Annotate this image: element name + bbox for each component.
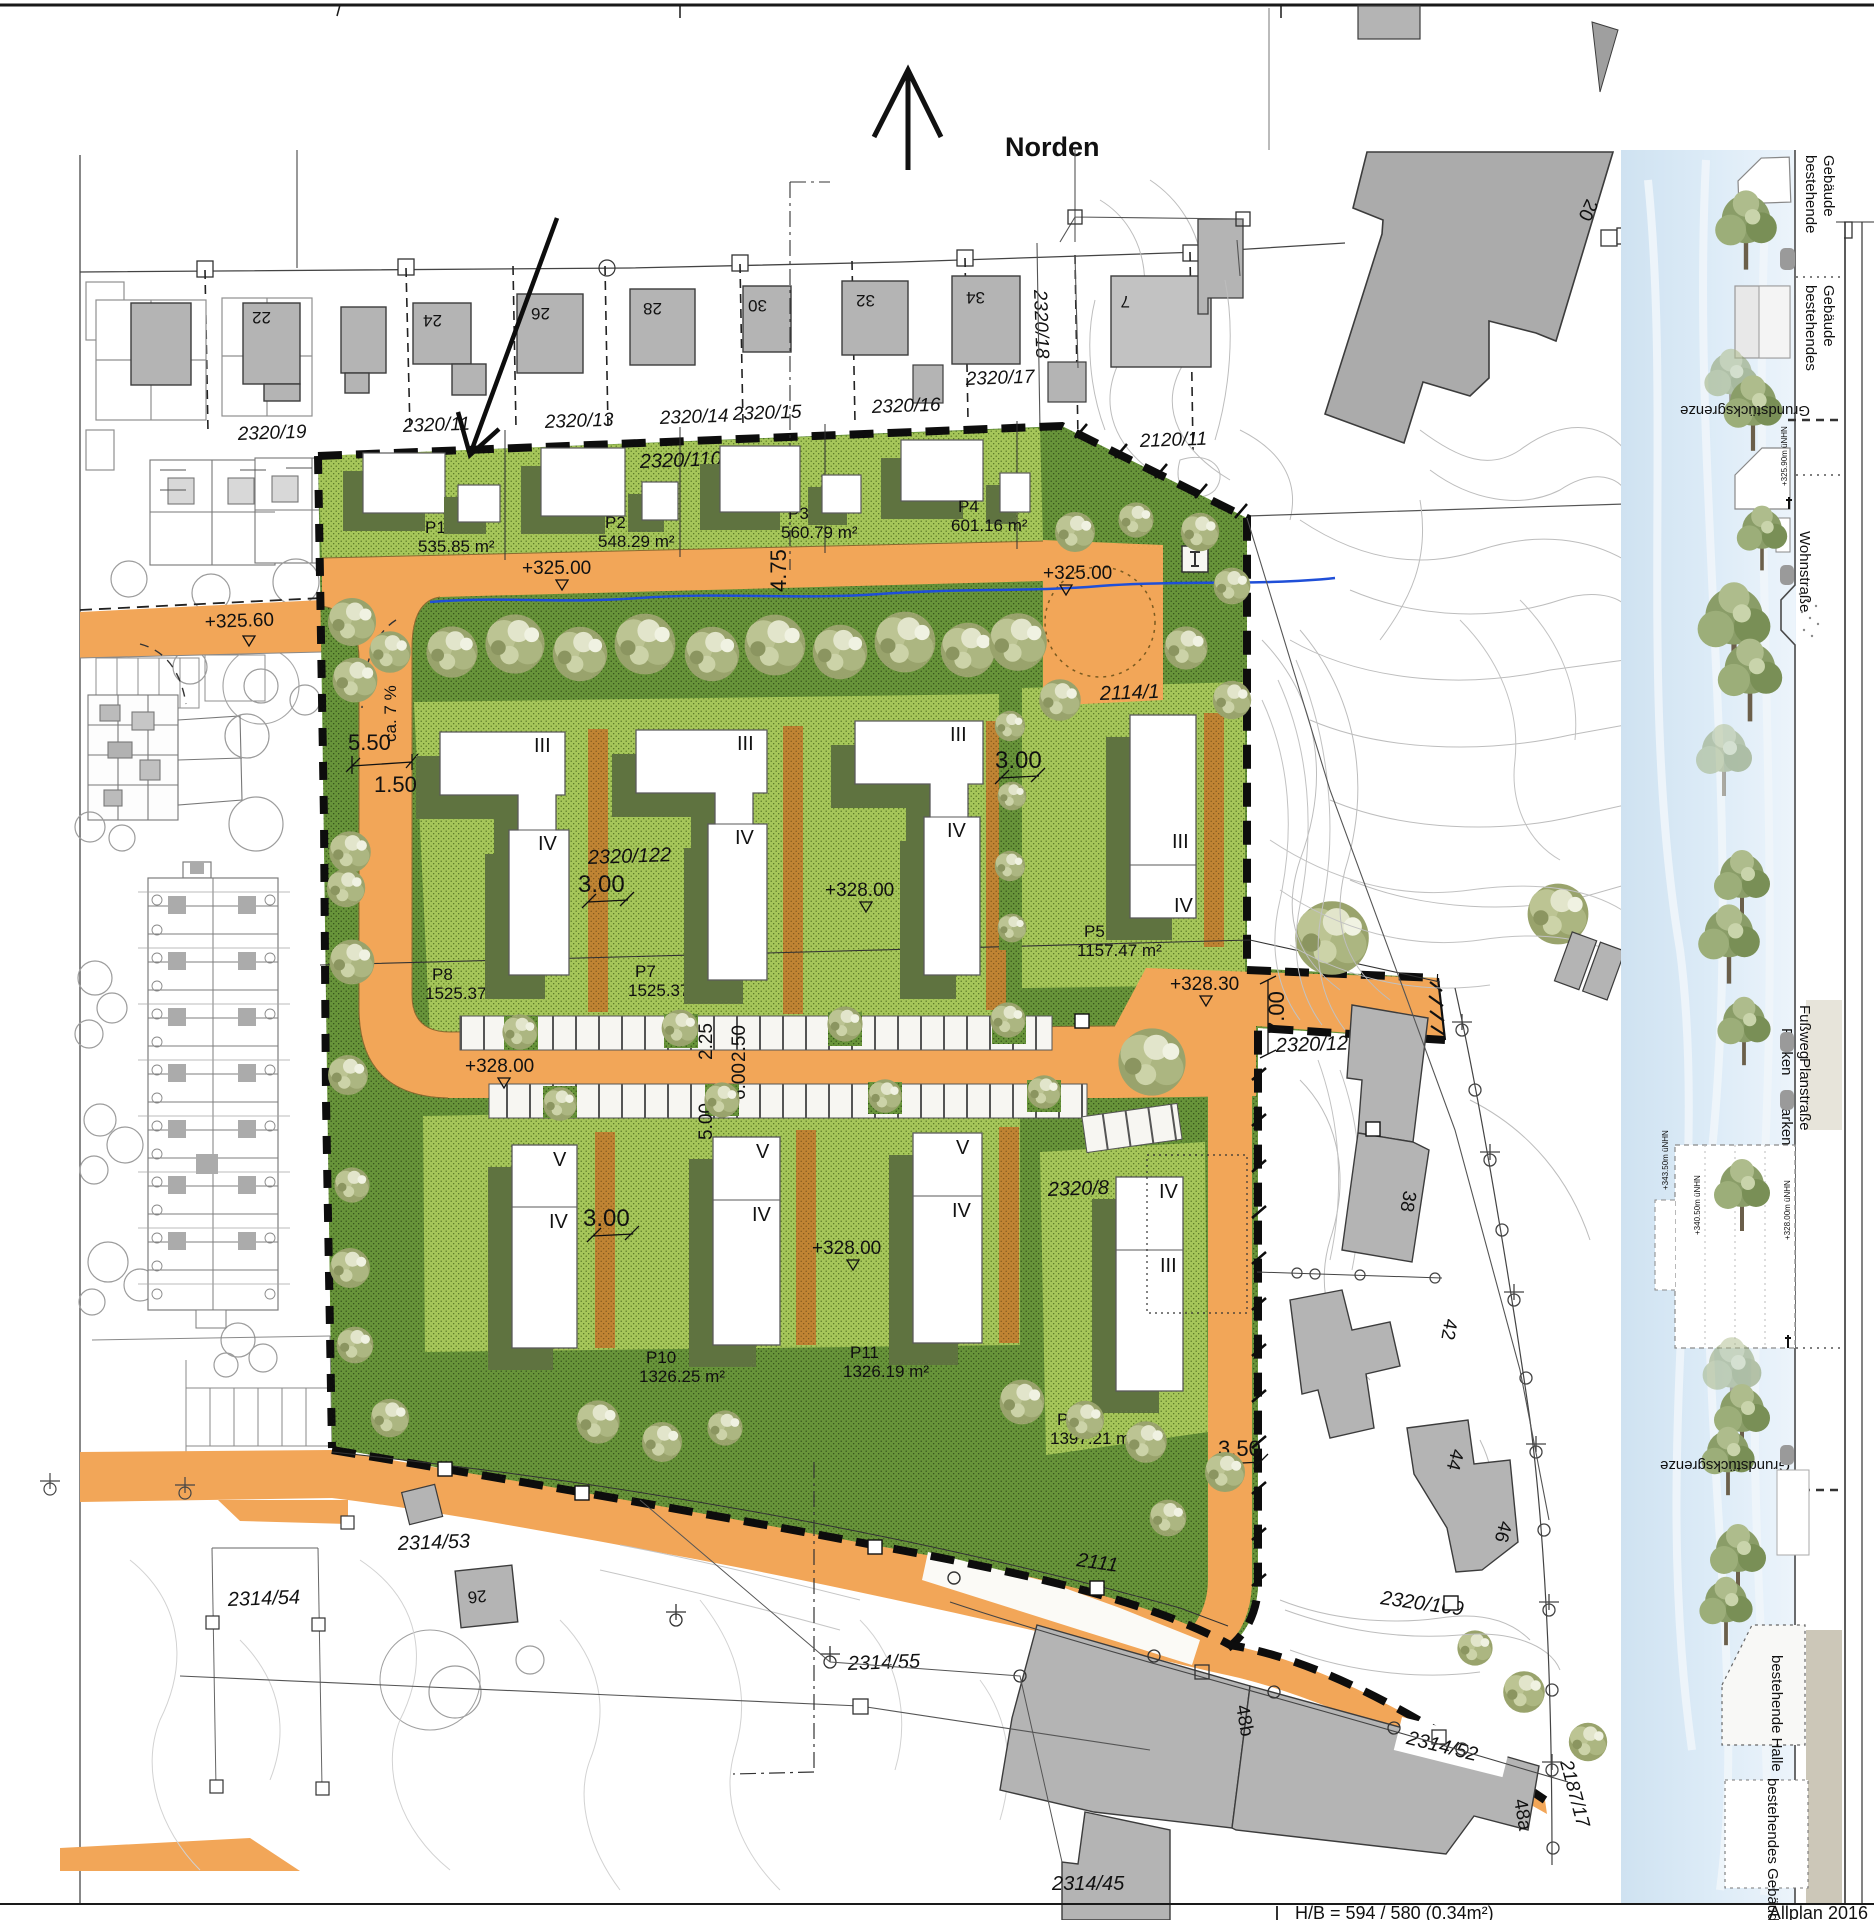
svg-text:7: 7 [1121, 292, 1130, 311]
svg-text:bestehendes: bestehendes [1802, 285, 1819, 371]
svg-text:28: 28 [643, 299, 662, 318]
svg-text:3.00: 3.00 [578, 871, 625, 898]
svg-text:4.75: 4.75 [766, 549, 791, 592]
svg-text:V: V [553, 1149, 567, 1171]
svg-text:III: III [1172, 831, 1189, 853]
svg-text:32: 32 [856, 291, 875, 310]
svg-text:bestehendes Gebäude: bestehendes Gebäude [1764, 1778, 1781, 1920]
svg-text:Norden: Norden [1005, 132, 1100, 162]
svg-text:+325.60: +325.60 [204, 610, 274, 633]
svg-text:Wohnstraße: Wohnstraße [1796, 531, 1813, 612]
svg-text:2320/8: 2320/8 [1046, 1177, 1109, 1201]
svg-text:IV: IV [735, 827, 755, 849]
svg-text:1.50: 1.50 [374, 772, 417, 797]
svg-text:P5: P5 [1084, 922, 1105, 941]
svg-text:2320/15: 2320/15 [731, 402, 802, 425]
svg-text:34: 34 [966, 288, 985, 307]
svg-text:2314/45: 2314/45 [1051, 1873, 1125, 1895]
svg-text:2.50: 2.50 [729, 1025, 750, 1062]
svg-text:IV: IV [549, 1211, 569, 1233]
svg-text:601.16 m²: 601.16 m² [951, 516, 1028, 535]
svg-text:bestehende Halle: bestehende Halle [1768, 1655, 1785, 1772]
svg-text:26: 26 [531, 304, 550, 323]
svg-text:P1: P1 [425, 518, 446, 537]
svg-text:30: 30 [748, 296, 767, 315]
svg-text:42: 42 [1436, 1317, 1460, 1341]
svg-text:P8: P8 [432, 965, 453, 984]
svg-text:P10: P10 [646, 1348, 676, 1367]
svg-text:+340.50m üNHN: +340.50m üNHN [1693, 1175, 1702, 1235]
svg-text:24: 24 [423, 311, 442, 330]
svg-text:+328.30: +328.30 [1170, 974, 1239, 995]
svg-text:Fußweg: Fußweg [1796, 1005, 1813, 1059]
svg-text:+328.00: +328.00 [812, 1238, 881, 1259]
svg-text:3.00: 3.00 [583, 1205, 630, 1232]
svg-text:V: V [956, 1137, 970, 1159]
svg-text:5.50: 5.50 [348, 730, 391, 755]
svg-text:Grundstücksgrenze: Grundstücksgrenze [1660, 1457, 1790, 1474]
svg-text:III: III [1160, 1255, 1177, 1277]
svg-text:bestehende: bestehende [1802, 155, 1819, 233]
svg-text:3.00: 3.00 [995, 747, 1042, 774]
svg-text:III: III [534, 735, 551, 757]
svg-text:2320/16: 2320/16 [870, 395, 941, 418]
svg-text:V: V [756, 1141, 770, 1163]
svg-text:+325.00: +325.00 [1043, 563, 1112, 584]
svg-text:III: III [737, 733, 754, 755]
svg-text:IV: IV [952, 1200, 972, 1222]
svg-text:2320/121: 2320/121 [1274, 1032, 1359, 1057]
svg-text:Allplan 2016: Allplan 2016 [1769, 1903, 1868, 1920]
svg-text:P11: P11 [850, 1343, 879, 1362]
svg-text:IV: IV [1159, 1181, 1179, 1203]
svg-text:Gebäude: Gebäude [1820, 285, 1837, 347]
svg-text:+325.90m üNHN: +325.90m üNHN [1780, 426, 1789, 486]
svg-text:+325.00: +325.00 [522, 558, 591, 579]
svg-text:2320/14: 2320/14 [658, 406, 728, 429]
svg-text:38: 38 [1395, 1189, 1419, 1213]
svg-text:560.79 m²: 560.79 m² [781, 523, 858, 542]
svg-text:P4: P4 [958, 497, 979, 516]
svg-text:2320/19: 2320/19 [236, 422, 307, 445]
svg-text:Grundstücksgrenze: Grundstücksgrenze [1680, 402, 1810, 419]
svg-text:2320/122: 2320/122 [586, 844, 671, 869]
svg-text:+343.50m üNHN: +343.50m üNHN [1661, 1130, 1670, 1190]
svg-text:III: III [950, 724, 967, 746]
svg-text:+328.00: +328.00 [465, 1056, 534, 1077]
svg-text:IV: IV [538, 833, 558, 855]
svg-text:IV: IV [1174, 895, 1194, 917]
svg-text:2320/17: 2320/17 [964, 367, 1036, 390]
svg-text:2320/13: 2320/13 [543, 410, 614, 433]
svg-text:2120/11: 2120/11 [1138, 429, 1207, 452]
svg-text:IV: IV [947, 820, 967, 842]
svg-text:Gebäude: Gebäude [1820, 155, 1837, 217]
svg-text:+328.00m üNHN: +328.00m üNHN [1783, 1180, 1792, 1240]
svg-text:26: 26 [467, 1586, 488, 1607]
svg-text:2314/55: 2314/55 [846, 1650, 921, 1675]
svg-text:2114/1: 2114/1 [1098, 681, 1159, 705]
svg-text:548.29 m²: 548.29 m² [598, 532, 675, 551]
svg-text:2320/18: 2320/18 [1029, 288, 1052, 359]
svg-text:535.85 m²: 535.85 m² [418, 537, 495, 556]
svg-text:2314/54: 2314/54 [226, 1586, 300, 1611]
svg-text:2.25: 2.25 [696, 1023, 717, 1060]
svg-text:1157.47 m²: 1157.47 m² [1077, 941, 1162, 960]
svg-text:+328.00: +328.00 [825, 880, 894, 901]
svg-text:2314/53: 2314/53 [396, 1530, 470, 1555]
svg-text:H/B = 594 / 580 (0.34m²): H/B = 594 / 580 (0.34m²) [1295, 1903, 1494, 1920]
svg-text:IV: IV [752, 1204, 772, 1226]
svg-text:22: 22 [252, 308, 271, 327]
svg-text:1326.25 m²: 1326.25 m² [639, 1367, 725, 1386]
svg-text:P7: P7 [635, 962, 656, 981]
svg-text:Planstraße: Planstraße [1796, 1058, 1813, 1131]
